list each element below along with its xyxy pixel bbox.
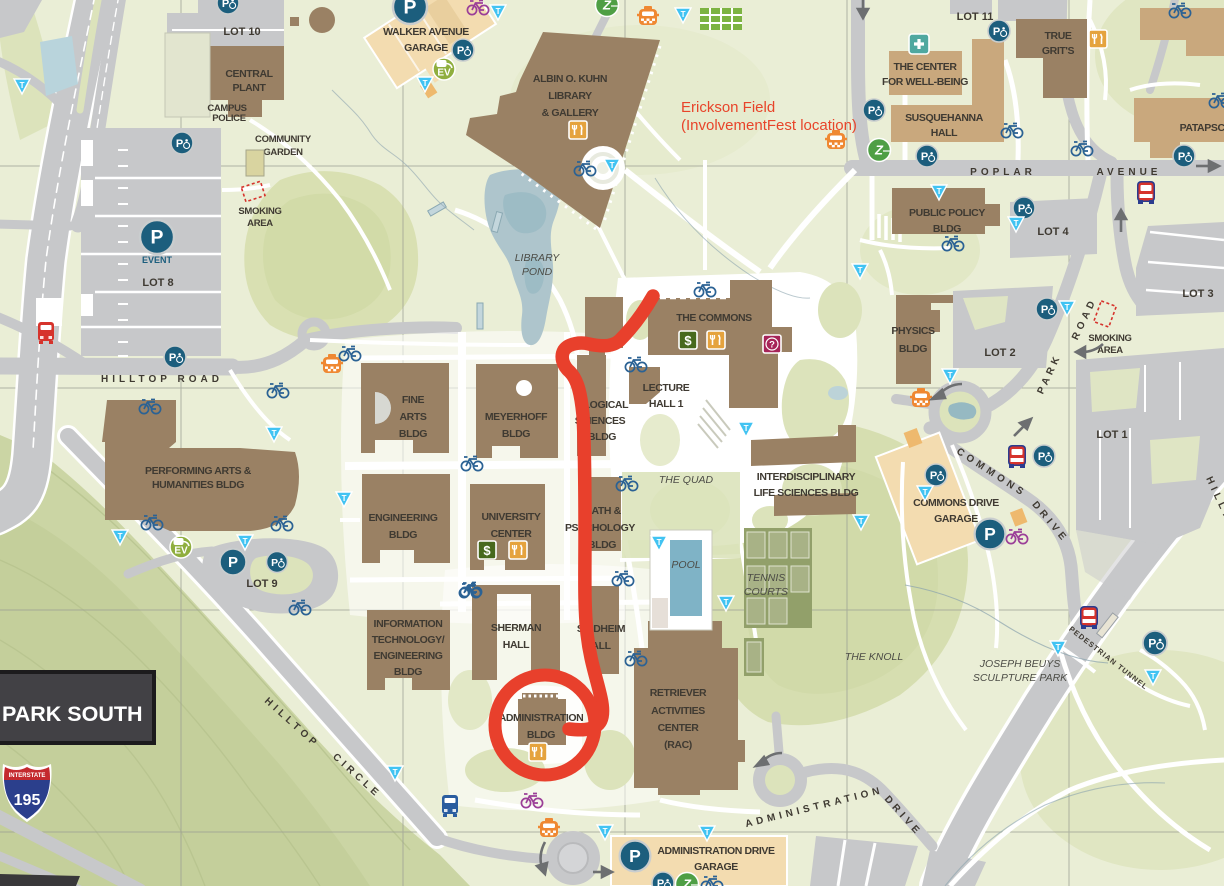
svg-text:GARAGE: GARAGE bbox=[934, 513, 978, 525]
svg-text:THE CENTER: THE CENTER bbox=[893, 61, 957, 73]
svg-text:PUBLIC POLICY: PUBLIC POLICY bbox=[909, 207, 985, 219]
svg-text:LOT 9: LOT 9 bbox=[246, 578, 277, 590]
svg-text:& GALLERY: & GALLERY bbox=[542, 107, 599, 119]
svg-text:BLDG: BLDG bbox=[502, 428, 530, 440]
svg-text:ALBIN O. KUHN: ALBIN O. KUHN bbox=[533, 73, 607, 85]
svg-text:HALL: HALL bbox=[503, 639, 530, 651]
svg-text:HALL 1: HALL 1 bbox=[649, 398, 684, 410]
svg-text:AVENUE: AVENUE bbox=[1097, 167, 1162, 178]
svg-text:THE COMMONS: THE COMMONS bbox=[676, 312, 752, 324]
svg-text:TENNIS: TENNIS bbox=[747, 572, 786, 584]
svg-text:UNIVERSITY: UNIVERSITY bbox=[481, 511, 540, 523]
svg-text:LOT 3: LOT 3 bbox=[1182, 288, 1213, 300]
svg-text:CENTER: CENTER bbox=[491, 528, 533, 540]
svg-text:MEYERHOFF: MEYERHOFF bbox=[485, 411, 548, 423]
svg-text:LIBRARY: LIBRARY bbox=[515, 252, 561, 264]
svg-text:SMOKING: SMOKING bbox=[1088, 333, 1131, 344]
svg-text:SUSQUEHANNA: SUSQUEHANNA bbox=[905, 112, 984, 124]
svg-text:BLDG: BLDG bbox=[933, 223, 961, 235]
svg-text:FOR WELL-BEING: FOR WELL-BEING bbox=[882, 76, 968, 88]
svg-text:POPLAR: POPLAR bbox=[970, 167, 1036, 178]
svg-text:PSYCHOLOGY: PSYCHOLOGY bbox=[565, 522, 635, 534]
svg-text:BLDG: BLDG bbox=[588, 539, 616, 551]
svg-text:LOT 8: LOT 8 bbox=[142, 277, 173, 289]
svg-text:GARDEN: GARDEN bbox=[263, 147, 303, 158]
svg-text:LOT 11: LOT 11 bbox=[957, 11, 994, 23]
svg-text:RETRIEVER: RETRIEVER bbox=[650, 687, 707, 699]
svg-text:ADMINISTRATION: ADMINISTRATION bbox=[499, 712, 584, 724]
svg-text:ARTS: ARTS bbox=[400, 411, 427, 423]
svg-text:THE QUAD: THE QUAD bbox=[659, 474, 714, 486]
svg-text:LIBRARY: LIBRARY bbox=[548, 90, 592, 102]
svg-text:GARAGE: GARAGE bbox=[694, 861, 738, 873]
svg-text:HALL: HALL bbox=[931, 127, 958, 139]
svg-text:CENTER: CENTER bbox=[658, 722, 700, 734]
svg-text:TRUE: TRUE bbox=[1045, 30, 1072, 42]
svg-text:SMOKING: SMOKING bbox=[238, 206, 281, 217]
svg-text:POLICE: POLICE bbox=[212, 113, 246, 124]
svg-text:PATAPSCO: PATAPSCO bbox=[1180, 122, 1224, 134]
svg-text:COURTS: COURTS bbox=[744, 586, 788, 598]
svg-text:PERFORMING ARTS &: PERFORMING ARTS & bbox=[145, 465, 252, 477]
svg-text:BLDG: BLDG bbox=[588, 431, 616, 443]
svg-text:INFORMATION: INFORMATION bbox=[374, 618, 443, 630]
svg-text:POND: POND bbox=[522, 266, 553, 278]
svg-text:THE KNOLL: THE KNOLL bbox=[845, 651, 904, 663]
svg-text:WALKER AVENUE: WALKER AVENUE bbox=[383, 26, 469, 38]
svg-text:FINE: FINE bbox=[402, 394, 425, 406]
svg-text:PLANT: PLANT bbox=[233, 82, 267, 94]
svg-text:HUMANITIES BLDG: HUMANITIES BLDG bbox=[152, 479, 244, 491]
svg-text:LOT 10: LOT 10 bbox=[223, 26, 260, 38]
svg-text:AREA: AREA bbox=[247, 218, 273, 229]
svg-text:SCULPTURE PARK: SCULPTURE PARK bbox=[973, 672, 1068, 684]
svg-text:INTERDISCIPLINARY: INTERDISCIPLINARY bbox=[757, 471, 856, 483]
svg-text:INTERSTATE: INTERSTATE bbox=[9, 773, 46, 779]
svg-text:CENTRAL: CENTRAL bbox=[225, 68, 273, 80]
svg-text:(RAC): (RAC) bbox=[664, 739, 692, 751]
svg-text:BLDG: BLDG bbox=[899, 343, 927, 355]
svg-text:SHERMAN: SHERMAN bbox=[491, 622, 541, 634]
svg-text:BLDG: BLDG bbox=[394, 666, 422, 678]
svg-text:HILLTOP ROAD: HILLTOP ROAD bbox=[101, 374, 223, 385]
svg-text:BLDG: BLDG bbox=[389, 529, 417, 541]
svg-text:TECHNOLOGY/: TECHNOLOGY/ bbox=[372, 634, 445, 646]
svg-text:POOL: POOL bbox=[671, 559, 700, 571]
svg-text:(InvolvementFest location): (InvolvementFest location) bbox=[681, 117, 857, 134]
svg-text:BLDG: BLDG bbox=[527, 729, 555, 741]
svg-text:Erickson Field: Erickson Field bbox=[681, 99, 775, 116]
svg-text:GRIT'S: GRIT'S bbox=[1042, 45, 1075, 57]
svg-text:LIFE SCIENCES BLDG: LIFE SCIENCES BLDG bbox=[754, 487, 859, 499]
svg-text:195: 195 bbox=[14, 792, 41, 809]
svg-text:JOSEPH BEUYS: JOSEPH BEUYS bbox=[979, 658, 1061, 670]
svg-text:ADMINISTRATION DRIVE: ADMINISTRATION DRIVE bbox=[657, 845, 775, 857]
svg-text:ENGINEERING: ENGINEERING bbox=[368, 512, 437, 524]
svg-text:LOT 4: LOT 4 bbox=[1037, 226, 1069, 238]
svg-text:COMMUNITY: COMMUNITY bbox=[255, 134, 312, 145]
svg-text:PHYSICS: PHYSICS bbox=[891, 325, 935, 337]
svg-text:LOT 1: LOT 1 bbox=[1096, 429, 1127, 441]
svg-text:EVENT: EVENT bbox=[142, 255, 173, 265]
svg-text:BLDG: BLDG bbox=[399, 428, 427, 440]
svg-text:LECTURE: LECTURE bbox=[643, 382, 690, 394]
svg-text:ACTIVITIES: ACTIVITIES bbox=[651, 705, 705, 717]
svg-text:ENGINEERING: ENGINEERING bbox=[373, 650, 442, 662]
svg-text:PARK SOUTH: PARK SOUTH bbox=[2, 702, 143, 726]
svg-text:GARAGE: GARAGE bbox=[404, 42, 448, 54]
svg-text:LOT 2: LOT 2 bbox=[984, 347, 1015, 359]
